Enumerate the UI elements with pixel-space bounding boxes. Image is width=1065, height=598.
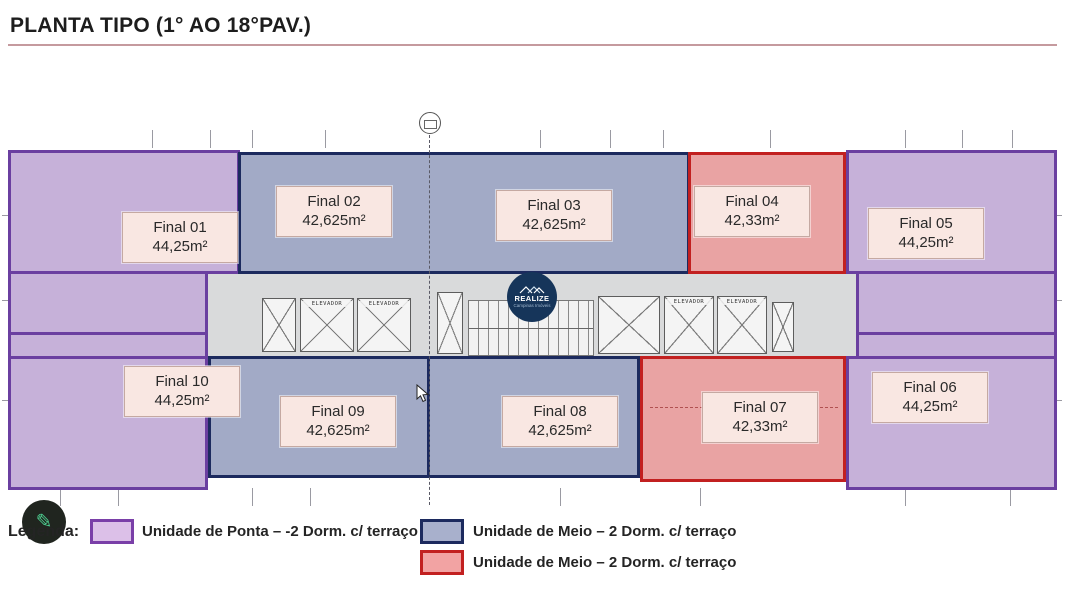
legend-swatch-ponta [90,519,134,544]
plan-centerline [429,135,430,505]
elevator-1-label: ELEVADOR [301,301,353,307]
unit-card-final-09: Final 09 42,625m² [280,396,396,447]
title-underline [8,44,1057,46]
mouse-cursor [416,384,430,404]
unit-ponta-right-mid [856,271,1057,359]
floor-plan: ELEVADOR ELEVADOR ELEVADOR ELEVADOR DORM… [0,50,1065,510]
unit-card-final-07: Final 07 42,33m² [702,392,818,443]
legend-label-meio-vermelho: Unidade de Meio – 2 Dorm. c/ terraço [473,554,736,571]
elevator-2-label: ELEVADOR [358,301,410,307]
unit-card-final-08: Final 08 42,625m² [502,396,618,447]
unit-card-final-03: Final 03 42,625m² [496,190,612,241]
legend-heading: Legenda: [8,523,79,541]
mountains-icon [519,285,545,294]
shaft-box-far-right [772,302,794,352]
shaft-box-right [598,296,660,354]
shaft-box-left [262,298,296,352]
section-marker-icon [419,112,441,134]
realize-logo: REALIZE Campinas Imóveis [507,272,557,322]
elevator-3-label: ELEVADOR [665,299,713,305]
elevator-1: ELEVADOR [300,298,354,352]
page-title: PLANTA TIPO (1° AO 18°PAV.) [10,14,311,38]
legend-label-meio-azul: Unidade de Meio – 2 Dorm. c/ terraço [473,523,736,540]
logo-brand-text: REALIZE [515,295,550,303]
legend-label-ponta: Unidade de Ponta – -2 Dorm. c/ terraço [142,523,418,540]
legend-swatch-meio-vermelho [420,550,464,575]
elevator-3: ELEVADOR [664,296,714,354]
unit-card-final-06: Final 06 44,25m² [872,372,988,423]
unit-card-final-10: Final 10 44,25m² [124,366,240,417]
unit-card-final-04: Final 04 42,33m² [694,186,810,237]
elevator-4-label: ELEVADOR [718,299,766,305]
unit-card-final-05: Final 05 44,25m² [868,208,984,259]
unit-card-final-01: Final 01 44,25m² [122,212,238,263]
legend-swatch-meio-azul [420,519,464,544]
staircase-midline [469,328,593,329]
logo-tagline-text: Campinas Imóveis [513,303,550,309]
unit-card-final-02: Final 02 42,625m² [276,186,392,237]
shaft-box-center [437,292,463,354]
unit-ponta-left-mid [8,271,208,359]
elevator-2: ELEVADOR [357,298,411,352]
legend: ✎ Legenda: Unidade de Ponta – -2 Dorm. c… [0,498,1065,598]
elevator-4: ELEVADOR [717,296,767,354]
